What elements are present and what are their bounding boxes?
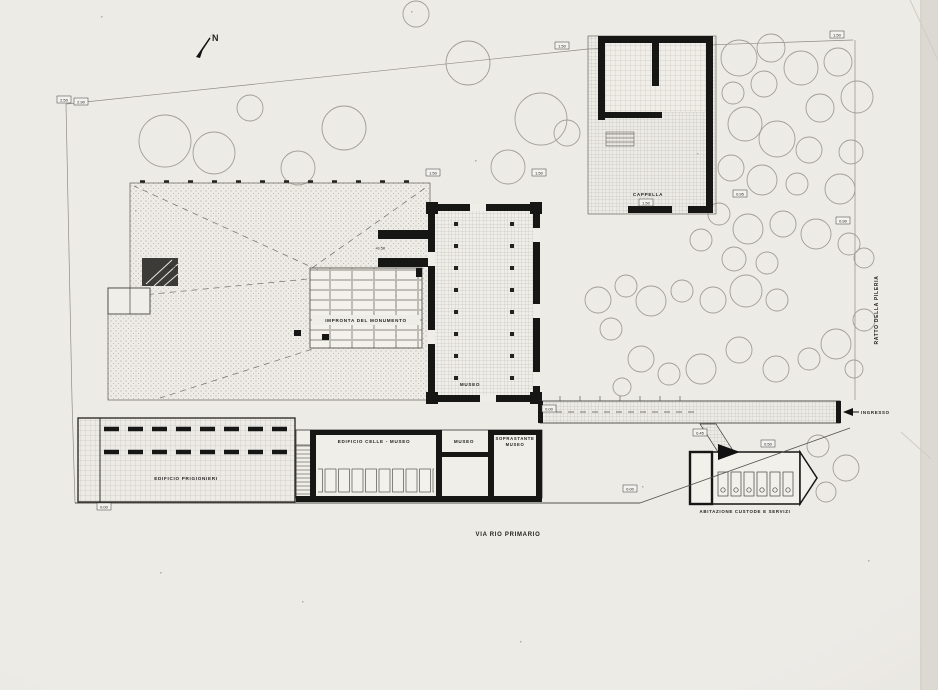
services-building: ABITAZIONE CUSTODE E SERVIZI [690,424,817,514]
tree-icon [747,165,777,195]
ratto-della-pileria-label: RATTO DELLA PILERIA [874,275,880,344]
ingresso-label: INGRESSO [861,410,890,415]
chapel-stairs [606,132,634,146]
tree-icon [786,173,808,195]
tree-icon [825,174,855,204]
cappella-label: CAPPELLA [633,192,663,197]
elevation-marker-value: 0.45 [696,431,705,436]
stair-block [296,445,311,498]
elevation-marker-value: +1.20 [167,265,178,270]
tree-icon [403,1,429,27]
tree-icon [636,286,666,316]
tree-icon [690,229,712,251]
elevation-marker-value: 0.90 [839,219,848,224]
tree-icon [491,150,525,184]
tree-icon [585,287,611,313]
tree-icon [726,337,752,363]
tree-icon [801,219,831,249]
tree-icon [766,289,788,311]
boundary-left-line [66,104,75,503]
tree-icon [730,275,762,307]
services-ramp [700,424,734,452]
tree-icon [784,51,818,85]
tree-icon [722,247,746,271]
elevation-marker-value: +0.50 [375,246,386,251]
tree-icon [139,115,191,167]
tree-icon [686,354,716,384]
north-arrow-shaft [198,38,210,56]
tree-icon [658,363,680,385]
tree-icon [833,455,859,481]
soprastante-label-1: SOPRASTANTE [495,436,534,441]
chapel-wall-bottom-a [628,206,672,213]
tree-icon [718,155,744,181]
elevation-marker-value: 1.50 [642,201,651,206]
tree-icon [763,356,789,382]
north-arrow: N [196,31,219,58]
tree-icon [237,95,263,121]
canopy-wall-bottom [378,258,430,267]
scanned-drawing-paper: N CAPPELLA IMPRON [0,0,938,690]
cells-wall-right [536,430,542,498]
chapel-wall-mid [598,112,662,118]
monument-block-c [416,268,422,277]
chapel-complex: CAPPELLA [588,36,716,214]
impronta-label: IMPRONTA DEL MONUMENTO [325,318,407,323]
elevation-marker-value: 1.50 [833,33,842,38]
via-rio-primario-label: VIA RIO PRIMARIO [476,532,541,538]
elevation-marker-value: 2.50 [60,98,69,103]
tree-icon [824,48,852,76]
services-chevron-end [800,452,817,504]
ingresso-arrow-icon [843,408,853,416]
walkway-end-right [836,401,841,423]
tree-icon [845,360,863,378]
tree-icon [853,309,875,331]
museum-floor-tiles [435,211,533,395]
plaza-small-rooms [108,288,150,314]
chapel-wall-bottom-b [688,206,713,213]
elevation-marker-value: 2.90 [77,100,86,105]
canopy-wall-top [378,230,430,239]
tree-icon [841,81,873,113]
tree-icon [628,346,654,372]
cells-wall-bottom [296,496,542,502]
cells-wall-mid1 [436,430,442,498]
monument-block-a [294,330,301,336]
tree-icon [756,252,778,274]
tree-icon [721,40,757,76]
entrance-walkway: INGRESSO [538,396,890,423]
elevation-marker-value: 0.50 [764,442,773,447]
cells-complex: EDIFICIO CELLE - MUSEO MUSEO SOPRASTANTE… [296,430,542,502]
tree-icon [554,120,580,146]
abitazione-custode-label: ABITAZIONE CUSTODE E SERVIZI [699,509,790,514]
site-plan-svg: N CAPPELLA IMPRON [0,0,938,690]
cells-wall-top [310,430,442,435]
elevation-marker-value: 0.95 [736,192,745,197]
chapel-wall-right [706,36,713,212]
tree-icon [839,140,863,164]
plaza-dark-block [142,258,178,286]
tree-icon [322,106,366,150]
tree-icon [515,93,567,145]
tree-icon [807,435,829,457]
elevation-marker-value: 0.00 [545,407,554,412]
tree-icon [751,71,777,97]
tree-icon [281,151,315,185]
cells-wall-left [310,430,316,498]
museo-room-wall-top [442,452,488,457]
museum-building: MUSEO [426,202,542,404]
elevation-marker-value: 1.50 [558,44,567,49]
tree-icon [671,280,693,302]
tree-icon [770,211,796,237]
tree-icon [757,34,785,62]
tree-icon [728,107,762,141]
tree-icon [613,378,631,396]
museo-building-label: MUSEO [460,382,480,387]
tree-icon [193,132,235,174]
chapel-wall-inner [652,36,659,86]
walkway-dimension-ticks [560,396,680,401]
tree-icon [733,214,763,244]
edificio-celle-label: EDIFICIO CELLE - MUSEO [338,439,411,444]
tree-icon [816,482,836,502]
tree-icon [798,348,820,370]
tree-icon [722,82,744,104]
elevation-marker-value: 1.50 [429,171,438,176]
paper-edge-band [922,0,938,690]
cells-wall-mid2 [488,430,494,498]
monument-court: IMPRONTA DEL MONUMENTO [294,268,422,348]
tree-icon [854,248,874,268]
tree-icon [806,94,834,122]
soprastante-label-2: MUSEO [506,442,525,447]
tree-icon [615,275,637,297]
chapel-wall-left [598,36,605,120]
edificio-prigionieri-label: EDIFICIO PRIGIONIERI [154,476,218,481]
soprastante-wall-top [488,430,542,435]
tree-icon [821,329,851,359]
boundary-top-line [66,40,853,104]
museo-room-label: MUSEO [454,439,474,444]
north-label: N [212,33,219,43]
museum-wall-left [428,204,435,402]
cell-row [318,468,434,494]
tree-icon [759,121,795,157]
tree-icon [796,137,822,163]
elevation-marker-value: 1.50 [535,171,544,176]
tree-icon [600,318,622,340]
tree-icon [700,287,726,313]
prisoners-building: EDIFICIO PRIGIONIERI [78,418,295,502]
elevation-marker-value: 0.00 [626,487,635,492]
elevation-marker-value: 0.00 [100,505,109,510]
monument-block-b [322,334,329,340]
